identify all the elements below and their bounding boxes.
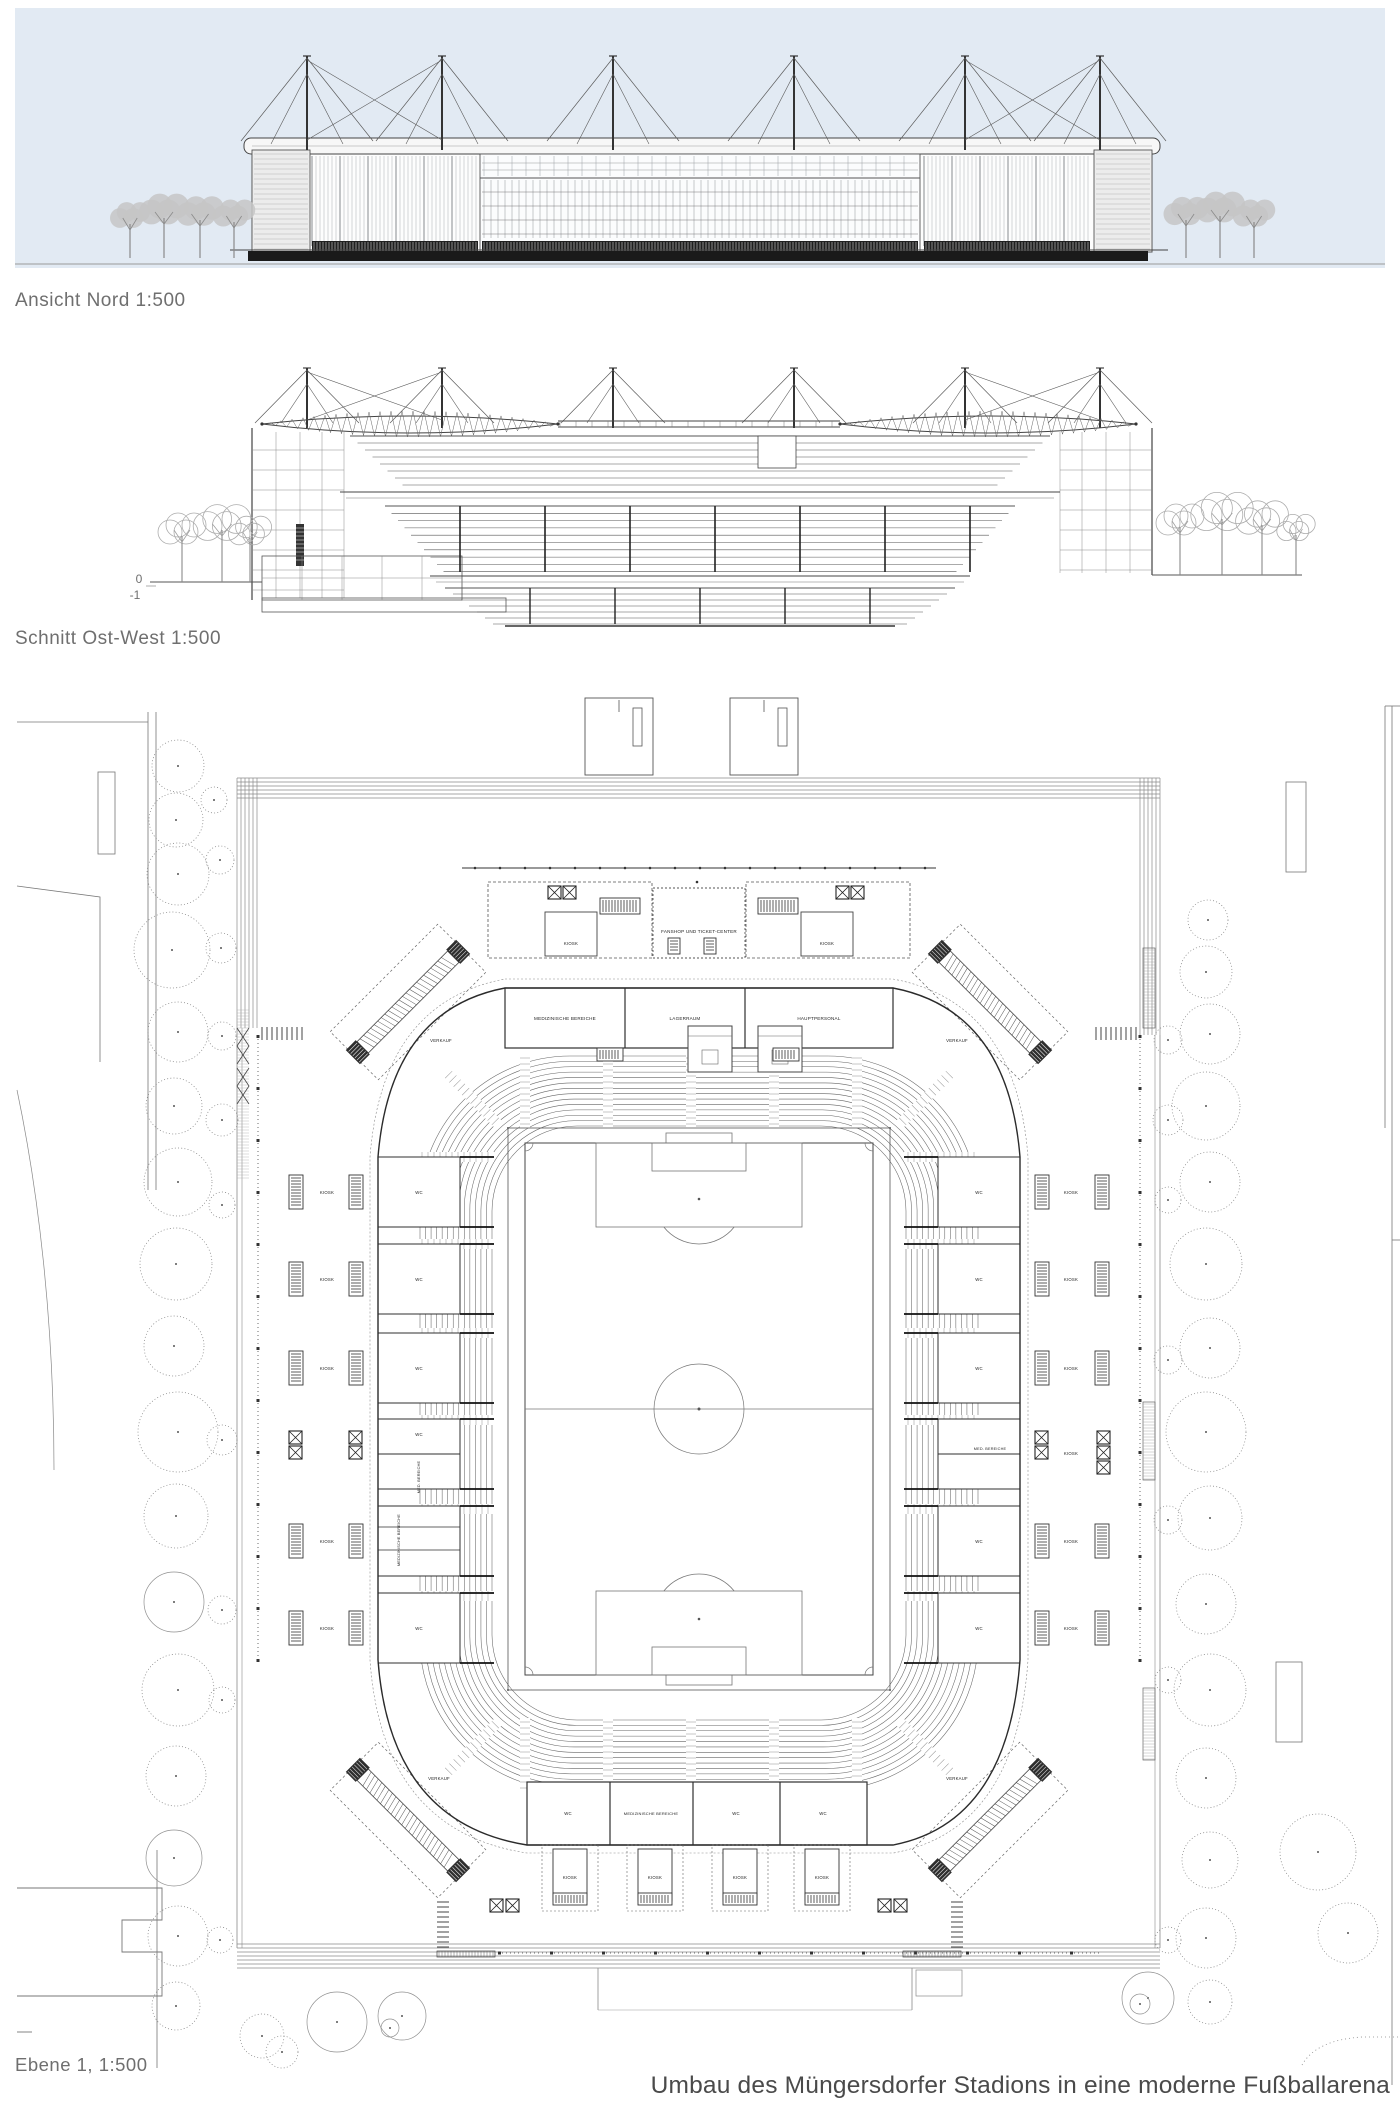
plan-room-label: WC (819, 1811, 827, 1816)
plan-room-label: KIOSK (815, 1875, 829, 1880)
floor-plan-level-1: FANSHOP UND TICKET-CENTERKIOSKKIOSKMEDIZ… (17, 698, 1400, 2085)
plan-room-label: WC (975, 1539, 983, 1544)
plan-room-label: FANSHOP UND TICKET-CENTER (661, 929, 737, 934)
plan-room-label: WC (564, 1811, 572, 1816)
plan-room-label: MED. BEREICHE (417, 1460, 421, 1493)
plan-room-label: HAUPTPERSONAL (797, 1016, 840, 1021)
plan-room-label: KIOSK (564, 941, 578, 946)
corner-ramp (329, 1741, 487, 1899)
plan-room-label: KIOSK (1064, 1190, 1078, 1195)
plan-room-label: KIOSK (320, 1366, 334, 1371)
plan-room-label: KIOSK (320, 1190, 334, 1195)
sheet-title: Umbau des Müngersdorfer Stadions in eine… (390, 2072, 1390, 2100)
elevation-north (15, 8, 1385, 268)
plan-room-label: KIOSK (320, 1539, 334, 1544)
plan-room-label: KIOSK (1064, 1366, 1078, 1371)
plan-room-label: KIOSK (733, 1875, 747, 1880)
section-level-0: 0 (136, 572, 143, 586)
plan-room-label: KIOSK (1064, 1277, 1078, 1282)
plan-room-label: KIOSK (1064, 1626, 1078, 1631)
plan-room-label: MED. BEREICHE (974, 1447, 1007, 1451)
architectural-drawing-sheet: 0 -1 FANSHOP UND TICKET-CENTERKIOSKKIOSK… (0, 0, 1400, 2113)
section-east-west: 0 -1 (130, 368, 1316, 626)
plan-room-label: VERKAUF (430, 1038, 452, 1043)
plan-room-label: WC (415, 1432, 423, 1437)
caption-section: Schnitt Ost-West 1:500 (15, 628, 221, 650)
plan-room-label: WC (415, 1277, 423, 1282)
caption-elevation: Ansicht Nord 1:500 (15, 290, 186, 312)
plan-room-label: WC (415, 1626, 423, 1631)
section-level-minus1: -1 (130, 588, 141, 602)
plan-room-label: KIOSK (648, 1875, 662, 1880)
caption-plan: Ebene 1, 1:500 (15, 2054, 148, 2076)
plan-room-label: WC (975, 1190, 983, 1195)
plan-room-label: KIOSK (563, 1875, 577, 1880)
plan-room-label: KIOSK (320, 1277, 334, 1282)
plan-room-label: MEDIZINISCHE BEREICHE (397, 1514, 401, 1566)
plan-room-label: VERKAUF (946, 1776, 968, 1781)
stadium-drawings: 0 -1 FANSHOP UND TICKET-CENTERKIOSKKIOSK… (0, 0, 1400, 2113)
plan-room-label: WC (732, 1811, 740, 1816)
corner-ramp (911, 1741, 1069, 1899)
plan-room-label: LAGERRAUM (670, 1016, 701, 1021)
plan-room-label: WC (975, 1277, 983, 1282)
plan-room-label: MEDIZINISCHE BEREICHE (624, 1811, 679, 1816)
plan-room-label: WC (415, 1366, 423, 1371)
plan-room-label: WC (415, 1190, 423, 1195)
plan-room-label: KIOSK (1064, 1539, 1078, 1544)
plan-room-label: WC (975, 1366, 983, 1371)
plan-room-label: KIOSK (820, 941, 834, 946)
plan-room-label: WC (975, 1626, 983, 1631)
plan-room-label: KIOSK (320, 1626, 334, 1631)
plan-room-label: KIOSK (1064, 1451, 1078, 1456)
plan-room-label: MEDIZINISCHE BEREICHE (534, 1016, 596, 1021)
plan-room-label: VERKAUF (946, 1038, 968, 1043)
plan-room-label: VERKAUF (428, 1776, 450, 1781)
